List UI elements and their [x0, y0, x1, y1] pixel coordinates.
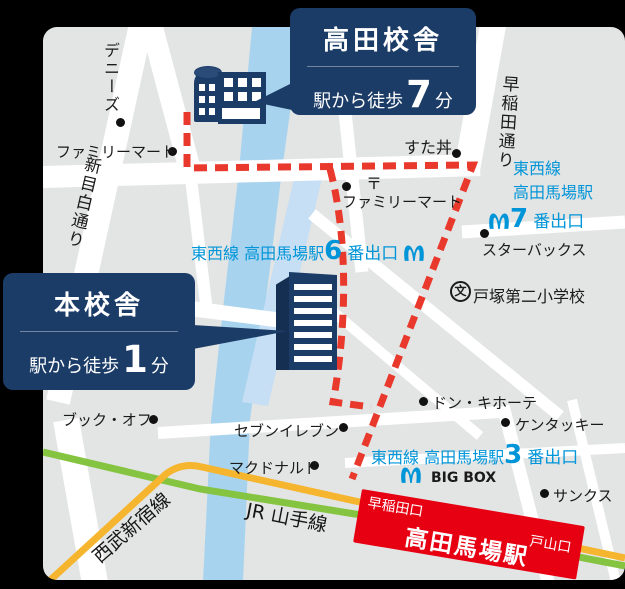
- poi-sunkus: サンクス: [553, 485, 613, 506]
- donki-dot: [419, 397, 428, 406]
- poi-seveneleven: セブンイレブン: [234, 420, 339, 441]
- poi-dennys: デニーズ: [98, 42, 122, 114]
- exit7-line2: 高田馬場駅: [488, 179, 593, 203]
- poi-familymart1: ファミリーマート: [56, 141, 176, 162]
- exit6-text: 東西線 高田馬場駅: [191, 244, 324, 263]
- walk-suffix: 分: [435, 91, 453, 112]
- poi-mcdonalds: マクドナルド: [229, 457, 319, 478]
- exit3-text: 東西線 高田馬場駅: [371, 448, 504, 467]
- exit3-suffix: 番出口: [527, 448, 578, 468]
- exit7-number: 7: [510, 204, 528, 234]
- takada-building-icon: [194, 62, 268, 124]
- walk-prefix: 駅から徒歩: [313, 91, 403, 112]
- metro-logo-icon: [488, 212, 510, 230]
- divider: [20, 331, 177, 332]
- map-canvas: デニーズ ファミリーマート すた丼 〒 ファミリーマート スターバックス 文 戸…: [0, 0, 625, 589]
- seveneleven-dot: [339, 423, 348, 432]
- takada-callout-title: 高田校舎: [290, 20, 476, 57]
- poi-starbucks: スターバックス: [482, 239, 586, 260]
- takada-callout: 高田校舎 駅から徒歩7分: [290, 8, 476, 115]
- poi-donki: ドン・キホーテ: [432, 392, 537, 413]
- main-callout-title: 本校舎: [3, 285, 195, 322]
- poi-school: 戸塚第二小学校: [473, 283, 585, 307]
- exit7-label: 東西線 高田馬場駅 7 番出口: [488, 155, 593, 234]
- walk-minutes: 7: [406, 73, 432, 116]
- walk-minutes: 1: [122, 338, 148, 381]
- exit6-label: 東西線 高田馬場駅6 番出口: [191, 236, 425, 266]
- metro-logo-icon: [400, 466, 422, 484]
- metro-logo-icon: [403, 244, 425, 262]
- poi-kfc: ケンタッキー: [515, 414, 605, 435]
- exit7-suffix: 番出口: [533, 212, 584, 232]
- main-building-icon: [276, 270, 338, 374]
- kfc-dot: [501, 418, 510, 427]
- exit6-number: 6: [324, 236, 342, 266]
- walk-suffix: 分: [151, 356, 169, 377]
- takada-walk-time: 駅から徒歩7分: [290, 73, 476, 116]
- divider: [307, 66, 460, 67]
- walk-prefix: 駅から徒歩: [29, 356, 119, 377]
- main-callout: 本校舎 駅から徒歩1分: [3, 273, 195, 390]
- poi-bookoff: ブック・オフ: [62, 409, 152, 430]
- poi-sutadon: すた丼: [404, 134, 452, 158]
- sutadon-dot: [452, 149, 461, 158]
- familymart2-dot: [342, 182, 351, 191]
- poi-familymart2: ファミリーマート: [342, 191, 462, 212]
- exit3-number: 3: [504, 440, 522, 470]
- main-walk-time: 駅から徒歩1分: [3, 338, 195, 381]
- exit6-suffix: 番出口: [347, 244, 398, 264]
- poi-bigbox: BIG BOX: [431, 470, 496, 486]
- school-icon: 文: [450, 281, 471, 302]
- sunkus-dot: [540, 489, 549, 498]
- dennys-dot: [116, 118, 125, 127]
- exit7-line1: 東西線: [488, 155, 593, 179]
